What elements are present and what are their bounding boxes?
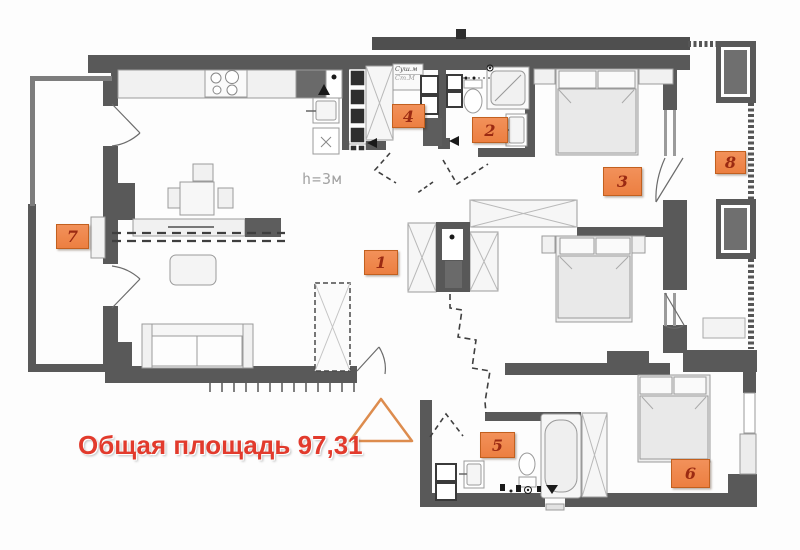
kitchen-counter (118, 70, 342, 154)
balcony-door (744, 393, 755, 433)
kitchen-tall-units (350, 70, 365, 151)
entry-threshold (546, 504, 564, 510)
room-label-6: 6 (671, 459, 710, 488)
room-number: 7 (67, 227, 78, 246)
sofa (142, 324, 253, 368)
window-sill (740, 434, 756, 474)
hall-storage (315, 222, 498, 371)
room-label-8: 8 (715, 151, 746, 174)
room-number: 2 (484, 121, 495, 140)
room-number: 6 (685, 464, 696, 483)
floor-plan: 1 2 3 4 5 6 7 8 h=3м Суш.м Ст.М Общая пл… (0, 0, 800, 550)
total-area-text: Общая площадь 97,31 (78, 430, 363, 461)
room-label-3: 3 (603, 167, 642, 196)
room-number: 3 (617, 172, 628, 191)
dishwasher (313, 128, 339, 154)
room-label-2: 2 (472, 117, 508, 143)
room-number: 5 (492, 436, 503, 455)
room-label-4: 4 (392, 104, 425, 128)
loggia-bench (91, 217, 105, 258)
chair (218, 188, 233, 208)
toilet (464, 80, 482, 88)
balcony-right-structure (688, 41, 756, 349)
bedroom-middle-furniture (542, 236, 645, 322)
balcony-bench (703, 318, 745, 338)
opening-arrow-left (449, 136, 459, 146)
room-label-7: 7 (56, 224, 89, 249)
coffee-table (170, 255, 216, 285)
loggia-glazing-walls (30, 76, 112, 206)
washer-label: Ст.М (395, 74, 423, 83)
washer-dryer-labels: Суш.м Ст.М (395, 66, 423, 82)
dryer-label: Суш.м (395, 66, 423, 74)
dining-table (180, 182, 214, 215)
chair (193, 164, 213, 181)
room-number: 8 (725, 153, 736, 172)
ceiling-height-note: h=3м (302, 170, 342, 188)
room-label-1: 1 (364, 250, 398, 275)
room-number: 4 (403, 107, 414, 126)
toilet (519, 477, 536, 487)
room-label-5: 5 (480, 432, 515, 458)
wall-hatch-ticks (210, 383, 354, 392)
room-number: 1 (375, 253, 386, 272)
